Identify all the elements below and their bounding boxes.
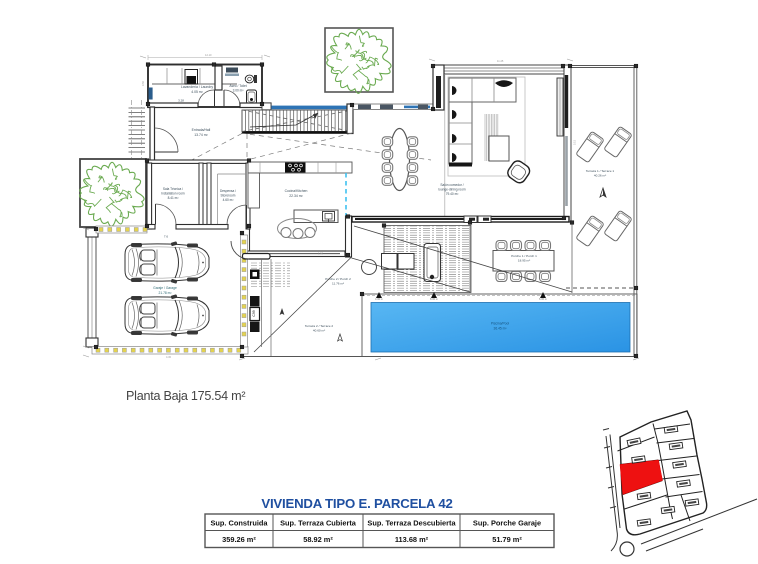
svg-text:Despensa /: Despensa / bbox=[220, 189, 236, 193]
svg-text:1.98: 1.98 bbox=[318, 252, 324, 256]
svg-text:3.50: 3.50 bbox=[141, 80, 145, 86]
svg-text:22.34 m²: 22.34 m² bbox=[289, 194, 303, 198]
svg-text:Sup. Terraza Descubierta: Sup. Terraza Descubierta bbox=[367, 519, 456, 528]
svg-text:Piscina/Pool: Piscina/Pool bbox=[491, 322, 509, 326]
svg-text:Cocina/Kitchen: Cocina/Kitchen bbox=[285, 189, 308, 193]
svg-text:4.05 m²: 4.05 m² bbox=[191, 90, 203, 94]
svg-text:VIVIENDA TIPO E. PARCELA 42: VIVIENDA TIPO E. PARCELA 42 bbox=[261, 496, 452, 511]
svg-text:Sup. Porche Garaje: Sup. Porche Garaje bbox=[473, 519, 541, 528]
svg-text:359.26 m²: 359.26 m² bbox=[222, 535, 256, 544]
svg-text:Storeroom: Storeroom bbox=[221, 194, 236, 198]
svg-text:4.00 m: 4.00 m bbox=[375, 297, 383, 301]
svg-text:11.45: 11.45 bbox=[497, 59, 504, 63]
svg-text:Sup. Terraza Cubierta: Sup. Terraza Cubierta bbox=[280, 519, 357, 528]
svg-text:5.15: 5.15 bbox=[573, 139, 577, 145]
svg-text:3.28: 3.28 bbox=[178, 99, 184, 103]
svg-text:Sup. Construida: Sup. Construida bbox=[210, 519, 268, 528]
svg-text:Terraza 1 / Terrace 1: Terraza 1 / Terrace 1 bbox=[586, 169, 615, 173]
svg-text:51.79 m²: 51.79 m² bbox=[492, 535, 522, 544]
svg-text:40.60 m²: 40.60 m² bbox=[313, 329, 325, 333]
svg-text:11.76 m²: 11.76 m² bbox=[332, 282, 344, 286]
svg-text:36.45 m²: 36.45 m² bbox=[493, 327, 507, 331]
svg-text:Sala Técnica /: Sala Técnica / bbox=[163, 187, 183, 191]
svg-text:C99: C99 bbox=[252, 310, 256, 316]
svg-text:79.40 m²: 79.40 m² bbox=[446, 192, 459, 196]
svg-text:13.74 m²: 13.74 m² bbox=[194, 133, 208, 137]
svg-text:Lavandería / Laundry: Lavandería / Laundry bbox=[181, 85, 213, 89]
svg-text:Aseo / Toilet: Aseo / Toilet bbox=[229, 84, 246, 88]
svg-text:12.10: 12.10 bbox=[205, 53, 212, 57]
svg-text:Porche 1 / Porch 1: Porche 1 / Porch 1 bbox=[511, 254, 537, 258]
svg-text:8.41 m²: 8.41 m² bbox=[168, 196, 179, 200]
svg-text:Entrada/Hall: Entrada/Hall bbox=[192, 128, 211, 132]
svg-text:21.78 m²: 21.78 m² bbox=[158, 291, 172, 295]
svg-text:Garaje / Garage: Garaje / Garage bbox=[153, 286, 177, 290]
svg-text:113.68 m²: 113.68 m² bbox=[395, 535, 429, 544]
svg-text:58.92 m²: 58.92 m² bbox=[303, 535, 333, 544]
svg-text:Installation room: Installation room bbox=[161, 192, 185, 196]
svg-text:Salón comedor /: Salón comedor / bbox=[440, 183, 463, 187]
svg-text:3.00 m²: 3.00 m² bbox=[233, 89, 244, 93]
svg-text:4.30: 4.30 bbox=[166, 355, 172, 359]
svg-text:lounge-dining room: lounge-dining room bbox=[438, 188, 466, 192]
svg-text:Planta Baja 175.54 m²: Planta Baja 175.54 m² bbox=[126, 389, 245, 403]
svg-text:7.6: 7.6 bbox=[164, 235, 169, 239]
svg-text:6.00 m: 6.00 m bbox=[539, 297, 547, 301]
svg-text:Terraza 2 / Terrace 2: Terraza 2 / Terrace 2 bbox=[305, 324, 334, 328]
svg-text:40.26 m²: 40.26 m² bbox=[594, 174, 606, 178]
svg-text:4.60 m²: 4.60 m² bbox=[223, 198, 234, 202]
svg-text:18.95 m²: 18.95 m² bbox=[518, 259, 530, 263]
svg-text:8.00 m: 8.00 m bbox=[430, 297, 438, 301]
